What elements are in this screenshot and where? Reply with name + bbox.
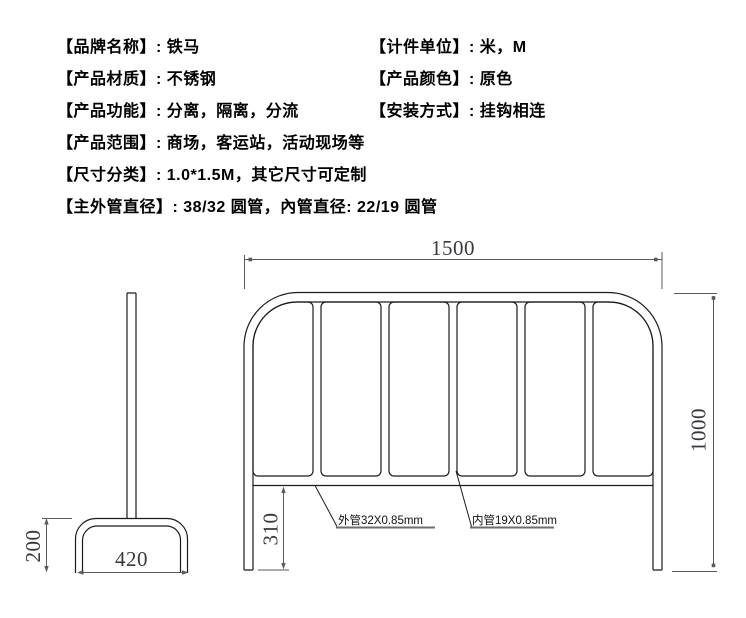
side-pole bbox=[127, 293, 136, 519]
frame-outer-line bbox=[244, 293, 662, 571]
dim-arrow-left bbox=[77, 570, 84, 574]
panel-1 bbox=[253, 302, 313, 476]
panel-3 bbox=[389, 302, 449, 476]
panel-5 bbox=[525, 302, 585, 476]
panel-2 bbox=[321, 302, 381, 476]
dim-width-1500: 1500 bbox=[245, 236, 663, 289]
product-spec-sheet: 【品牌名称】: 铁马【计件单位】: 米，M 【产品材质】: 不锈钢【产品颜色】:… bbox=[0, 0, 746, 618]
dim-foot-width-value: 420 bbox=[115, 547, 148, 571]
technical-drawing: 1500 1000 310 200 bbox=[0, 0, 746, 618]
side-view bbox=[76, 293, 188, 573]
leader-line bbox=[315, 486, 337, 527]
front-view bbox=[244, 293, 662, 571]
dim-foot-width-420: 420 bbox=[77, 547, 189, 575]
dim-height-1000: 1000 bbox=[672, 294, 717, 572]
dim-arrow-up bbox=[281, 487, 285, 494]
dim-tick-bottom bbox=[712, 564, 716, 568]
dim-arrow-down bbox=[44, 566, 48, 573]
panel-6 bbox=[593, 302, 653, 476]
dim-foot-height-200: 200 bbox=[21, 518, 72, 573]
dim-leg-value: 310 bbox=[259, 513, 283, 546]
dim-leg-310: 310 bbox=[258, 487, 289, 571]
dim-height-value: 1000 bbox=[687, 408, 711, 452]
leader-line bbox=[456, 471, 472, 527]
dim-foot-height-value: 200 bbox=[21, 530, 45, 563]
dim-tick-left bbox=[249, 258, 253, 262]
outer-tube-label: 外管32X0.85mm bbox=[338, 513, 423, 527]
dim-arrow-down bbox=[281, 563, 285, 570]
panel-4 bbox=[457, 302, 517, 476]
dim-tick-top bbox=[712, 296, 716, 300]
inner-tube-label: 内管19X0.85mm bbox=[472, 513, 557, 527]
leader-inner-tube: 内管19X0.85mm bbox=[456, 471, 557, 528]
dim-width-value: 1500 bbox=[431, 236, 475, 260]
leader-outer-tube: 外管32X0.85mm bbox=[315, 486, 435, 528]
dim-tick-right bbox=[654, 258, 658, 262]
